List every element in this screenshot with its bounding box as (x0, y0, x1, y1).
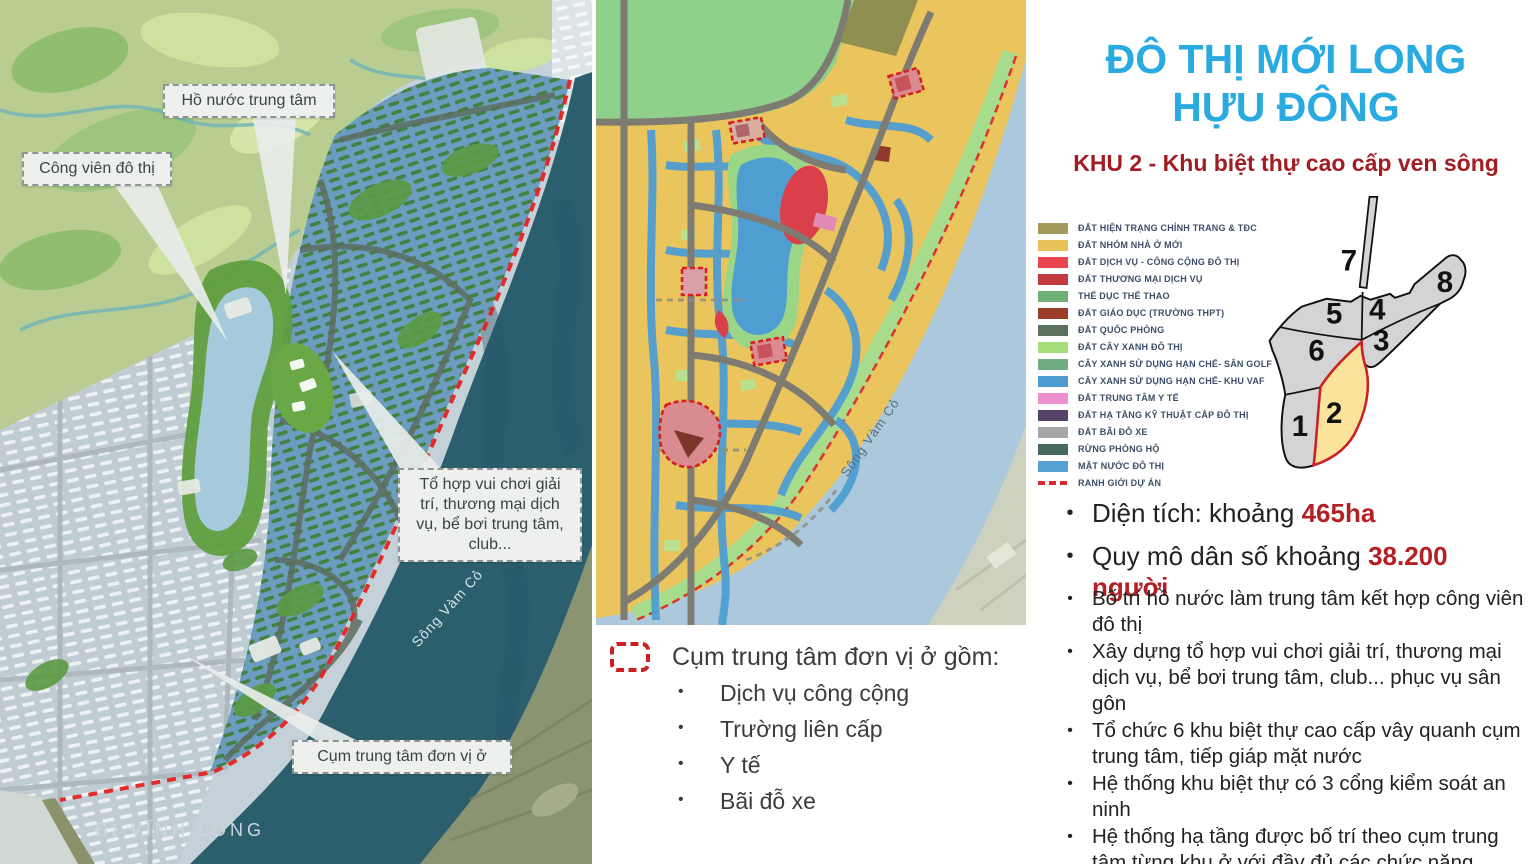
cluster-note-title: Cụm trung tâm đơn vị ở gồm: (672, 643, 999, 672)
legend-item: CÂY XANH SỬ DỤNG HẠN CHẾ- SÂN GOLF (1038, 356, 1278, 372)
legend-item: ĐẤT NHÓM NHÀ Ở MỚI (1038, 237, 1278, 253)
legend-swatch (1038, 223, 1068, 234)
legend-label: THỂ DỤC THỂ THAO (1078, 291, 1170, 301)
page-title-line2: HỰU ĐÔNG (1036, 84, 1536, 132)
zone-label-5: 5 (1326, 297, 1342, 330)
callout-entertainment-complex: Tổ hợp vui chơi giải trí, thương mại dịc… (398, 468, 582, 562)
legend-label: ĐẤT NHÓM NHÀ Ở MỚI (1078, 240, 1182, 250)
zone-label-3: 3 (1373, 325, 1389, 358)
legend-item: ĐẤT CÂY XANH ĐÔ THỊ (1038, 339, 1278, 355)
legend-label: MẶT NƯỚC ĐÔ THỊ (1078, 461, 1164, 471)
legend-label: CÂY XANH SỬ DỤNG HẠN CHẾ- KHU VAF (1078, 376, 1265, 386)
legend-item: ĐẤT THƯƠNG MẠI DỊCH VỤ (1038, 271, 1278, 287)
legend-swatch (1038, 461, 1068, 472)
callout-urban-park: Công viên đô thị (22, 152, 172, 186)
callout-central-lake-text: Hồ nước trung tâm (181, 92, 316, 109)
cluster-note-item: •Dịch vụ công cộng (674, 680, 1034, 707)
cluster-note-list: •Dịch vụ công cộng•Trường liên cấp•Y tế•… (604, 680, 1034, 815)
bullet-text: Hệ thống hạ tầng được bố trí theo cụm tr… (1092, 824, 1530, 864)
callout-central-lake: Hồ nước trung tâm (163, 84, 335, 118)
legend-item: ĐẤT QUỐC PHÒNG (1038, 322, 1278, 338)
landuse-map-graphic (596, 0, 1026, 625)
zone-label-8: 8 (1437, 266, 1453, 299)
masterplan-satellite-map: Hồ nước trung tâm Công viên đô thị Tổ hợ… (0, 0, 592, 864)
legend-swatch (1038, 325, 1068, 336)
legend-item: THỂ DỤC THỂ THAO (1038, 288, 1278, 304)
cluster-note-item: •Trường liên cấp (674, 716, 1034, 743)
legend-swatch (1038, 308, 1068, 319)
bullet-dot: • (1048, 771, 1092, 823)
page-subtitle: KHU 2 - Khu biệt thự cao cấp ven sông (1036, 150, 1536, 177)
legend-swatch (1038, 481, 1068, 485)
legend-item: ĐẤT HẠ TẦNG KỸ THUẬT CẤP ĐÔ THỊ (1038, 407, 1278, 423)
stat-highlight: 465ha (1302, 498, 1376, 528)
masterplan-map-graphic (0, 0, 592, 864)
bullet-dot: • (1048, 824, 1092, 864)
bullet-dot: • (1048, 498, 1092, 529)
legend-label: ĐẤT QUỐC PHÒNG (1078, 325, 1164, 335)
legend-swatch (1038, 444, 1068, 455)
bullet-item: •Bố trí hồ nước làm trung tâm kết hợp cô… (1048, 586, 1530, 638)
callout-unit-center-cluster: Cụm trung tâm đơn vị ở (292, 740, 512, 774)
callout-urban-park-text: Công viên đô thị (39, 160, 155, 177)
legend-swatch (1038, 257, 1068, 268)
bullet-item: •Hệ thống hạ tầng được bố trí theo cụm t… (1048, 824, 1530, 864)
slide: Hồ nước trung tâm Công viên đô thị Tổ hợ… (0, 0, 1536, 864)
legend-swatch (1038, 240, 1068, 251)
legend-label: ĐẤT GIÁO DỤC (TRƯỜNG THPT) (1078, 308, 1224, 318)
zone-label-7: 7 (1341, 244, 1357, 277)
bullet-dot: • (1048, 586, 1092, 638)
legend-label: ĐẤT HẠ TẦNG KỸ THUẬT CẤP ĐÔ THỊ (1078, 410, 1249, 420)
bullet-dot: • (674, 716, 720, 743)
zone-label-4: 4 (1369, 293, 1386, 326)
cluster-note-item-text: Y tế (720, 752, 761, 779)
bullet-text: Hệ thống khu biệt thự có 3 cổng kiểm soá… (1092, 771, 1530, 823)
legend-swatch (1038, 393, 1068, 404)
bullet-dot: • (674, 752, 720, 779)
legend-label: CÂY XANH SỬ DỤNG HẠN CHẾ- SÂN GOLF (1078, 359, 1272, 369)
callout-entertainment-complex-text: Tổ hợp vui chơi giải trí, thương mại dịc… (416, 476, 563, 553)
legend-item: MẶT NƯỚC ĐÔ THỊ (1038, 458, 1278, 474)
legend-item: ĐẤT TRUNG TÂM Y TẾ (1038, 390, 1278, 406)
landuse-plan-map: Sông Vàm Cỏ (596, 0, 1026, 625)
page-title: ĐÔ THỊ MỚI LONG HỰU ĐÔNG (1036, 36, 1536, 132)
legend-label: ĐẤT HIỆN TRẠNG CHỈNH TRANG & TĐC (1078, 223, 1257, 233)
legend-swatch (1038, 274, 1068, 285)
stat-item: •Diện tích: khoảng 465ha (1048, 498, 1528, 529)
bullet-text: Xây dựng tổ hợp vui chơi giải trí, thươn… (1092, 639, 1530, 717)
bullet-item: •Xây dựng tổ hợp vui chơi giải trí, thươ… (1048, 639, 1530, 717)
legend-list: ĐẤT HIỆN TRẠNG CHỈNH TRANG & TĐCĐẤT NHÓM… (1038, 220, 1278, 491)
legend-item: ĐẤT HIỆN TRẠNG CHỈNH TRANG & TĐC (1038, 220, 1278, 236)
legend-label: RANH GIỚI DỰ ÁN (1078, 478, 1161, 488)
legend: ĐẤT HIỆN TRẠNG CHỈNH TRANG & TĐCĐẤT NHÓM… (1038, 220, 1278, 492)
road-direction-label: ĐI VĨNH LONG (95, 820, 265, 841)
legend-item: ĐẤT BÃI ĐỖ XE (1038, 424, 1278, 440)
cluster-note: Cụm trung tâm đơn vị ở gồm: •Dịch vụ côn… (604, 642, 1034, 824)
cluster-note-item: •Bãi đỗ xe (674, 788, 1034, 815)
zone-label-2: 2 (1326, 397, 1342, 430)
legend-item: ĐẤT GIÁO DỤC (TRƯỜNG THPT) (1038, 305, 1278, 321)
legend-label: ĐẤT TRUNG TÂM Y TẾ (1078, 393, 1179, 403)
info-panel: ĐÔ THỊ MỚI LONG HỰU ĐÔNG KHU 2 - Khu biệ… (1036, 0, 1536, 864)
bullet-item: •Hệ thống khu biệt thự có 3 cổng kiểm so… (1048, 771, 1530, 823)
page-title-line1: ĐÔ THỊ MỚI LONG (1036, 36, 1536, 84)
legend-item: RỪNG PHÒNG HỘ (1038, 441, 1278, 457)
bullet-dot: • (1048, 639, 1092, 717)
legend-swatch (1038, 342, 1068, 353)
legend-swatch (1038, 359, 1068, 370)
bullet-dot: • (674, 788, 720, 815)
legend-label: ĐẤT BÃI ĐỖ XE (1078, 427, 1148, 437)
cluster-note-item-text: Bãi đỗ xe (720, 788, 816, 815)
zone-label-1: 1 (1292, 410, 1308, 443)
zone-label-6: 6 (1308, 334, 1324, 367)
bullets-list: •Bố trí hồ nước làm trung tâm kết hợp cô… (1048, 586, 1530, 864)
legend-label: RỪNG PHÒNG HỘ (1078, 444, 1160, 454)
zone-key-map: 12345678 (1248, 190, 1536, 482)
legend-swatch (1038, 376, 1068, 387)
legend-swatch (1038, 410, 1068, 421)
bullet-text: Bố trí hồ nước làm trung tâm kết hợp côn… (1092, 586, 1530, 638)
bullet-text: Tổ chức 6 khu biệt thự cao cấp vây quanh… (1092, 718, 1530, 770)
legend-swatch (1038, 291, 1068, 302)
callout-unit-center-cluster-text: Cụm trung tâm đơn vị ở (317, 748, 486, 765)
cluster-note-item-text: Trường liên cấp (720, 716, 883, 743)
legend-label: ĐẤT THƯƠNG MẠI DỊCH VỤ (1078, 274, 1203, 284)
legend-label: ĐẤT CÂY XANH ĐÔ THỊ (1078, 342, 1183, 352)
cluster-note-item: •Y tế (674, 752, 1034, 779)
legend-item: ĐẤT DỊCH VỤ - CÔNG CỘNG ĐÔ THỊ (1038, 254, 1278, 270)
legend-swatch (1038, 427, 1068, 438)
stat-text: Diện tích: khoảng 465ha (1092, 498, 1375, 529)
bullet-dot: • (674, 680, 720, 707)
bullet-dot: • (1048, 718, 1092, 770)
cluster-note-item-text: Dịch vụ công cộng (720, 680, 909, 707)
legend-label: ĐẤT DỊCH VỤ - CÔNG CỘNG ĐÔ THỊ (1078, 257, 1240, 267)
legend-item: CÂY XANH SỬ DỤNG HẠN CHẾ- KHU VAF (1038, 373, 1278, 389)
legend-item: RANH GIỚI DỰ ÁN (1038, 475, 1278, 491)
red-dashed-square-icon (610, 642, 650, 672)
bullet-item: •Tổ chức 6 khu biệt thự cao cấp vây quan… (1048, 718, 1530, 770)
